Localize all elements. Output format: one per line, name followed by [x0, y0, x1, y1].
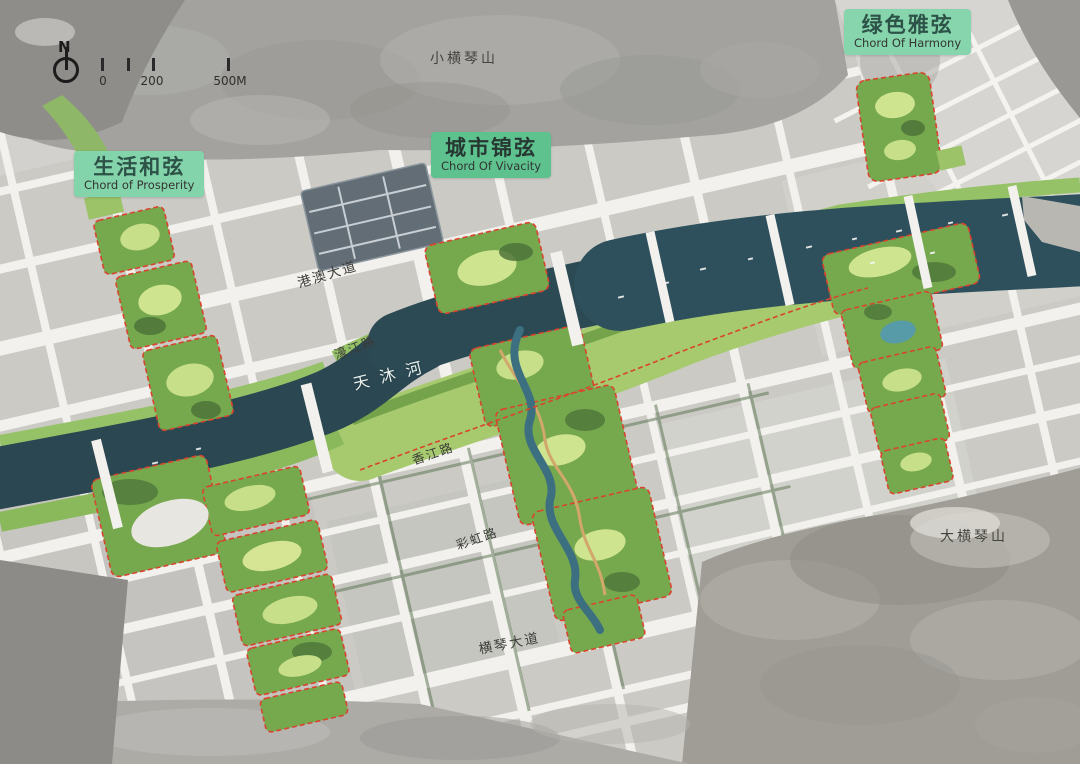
map-artwork — [0, 0, 1080, 764]
badge-harmony-en: Chord Of Harmony — [854, 37, 961, 50]
scale-tick — [127, 58, 130, 71]
scale-tick — [227, 58, 230, 71]
label-mountain-bottom: 大横琴山 — [940, 526, 1008, 546]
badge-harmony-zh: 绿色雅弦 — [854, 13, 961, 37]
scale-tick — [152, 58, 155, 71]
badge-chord-of-harmony: 绿色雅弦 Chord Of Harmony — [844, 9, 971, 55]
badge-chord-of-vivacity: 城市锦弦 Chord Of Vivacity — [431, 132, 551, 178]
scale-label-500: 500M — [213, 74, 246, 88]
masterplan-map: N 0 200 500M 生活和弦 Chord of Prosperity 城市… — [0, 0, 1080, 764]
badge-vivacity-zh: 城市锦弦 — [441, 136, 541, 160]
badge-chord-of-prosperity: 生活和弦 Chord of Prosperity — [74, 151, 204, 197]
badge-prosperity-zh: 生活和弦 — [84, 155, 194, 179]
scale-tick — [101, 58, 104, 71]
label-mountain-top: 小横琴山 — [430, 48, 498, 68]
scale-label-200: 200 — [141, 74, 164, 88]
north-needle-icon — [65, 47, 68, 70]
badge-prosperity-en: Chord of Prosperity — [84, 179, 194, 192]
badge-vivacity-en: Chord Of Vivacity — [441, 160, 541, 173]
scale-label-0: 0 — [99, 74, 107, 88]
